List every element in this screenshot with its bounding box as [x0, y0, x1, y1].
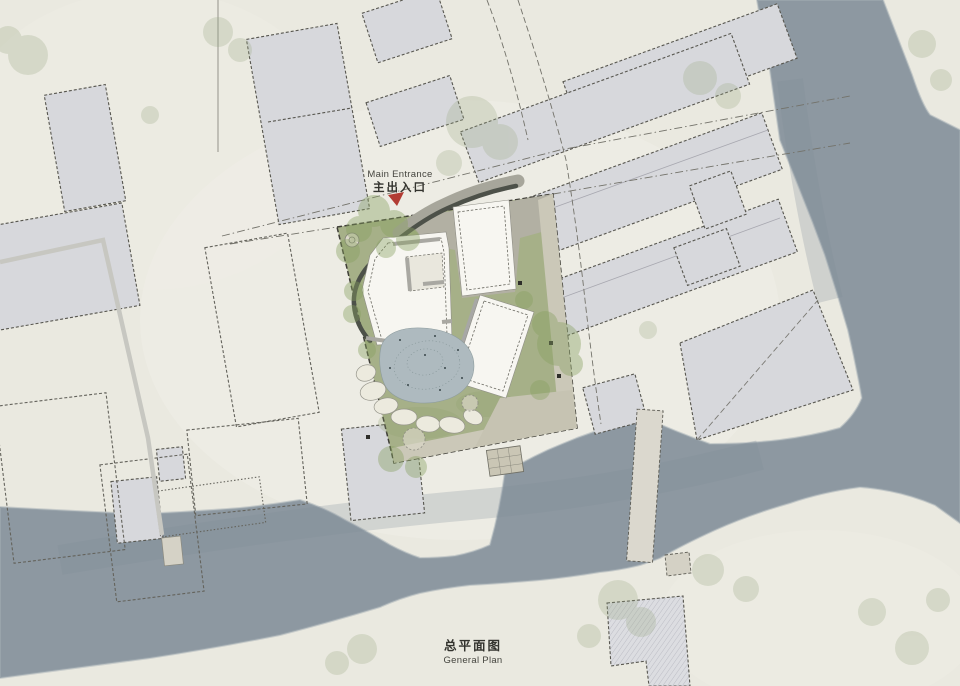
general-plan-drawing: Main Entrance 主出入口 总平面图 General Plan: [0, 0, 960, 686]
garden-circle: [462, 395, 478, 411]
pond: [380, 328, 474, 403]
main-entrance-label-en: Main Entrance: [367, 169, 432, 180]
site-plan-canvas: Main Entrance 主出入口 总平面图 General Plan: [0, 0, 960, 686]
bridge-landing: [665, 552, 691, 576]
river-dock: [486, 446, 523, 476]
site-building-northeast: [453, 200, 516, 296]
garden-circle: [403, 428, 425, 450]
pier: [162, 536, 184, 566]
plan-title-en: General Plan: [443, 655, 502, 666]
plan-title-zh: 总平面图: [444, 638, 502, 653]
context-building: [156, 447, 185, 482]
main-entrance-label-zh: 主出入口: [373, 180, 427, 194]
